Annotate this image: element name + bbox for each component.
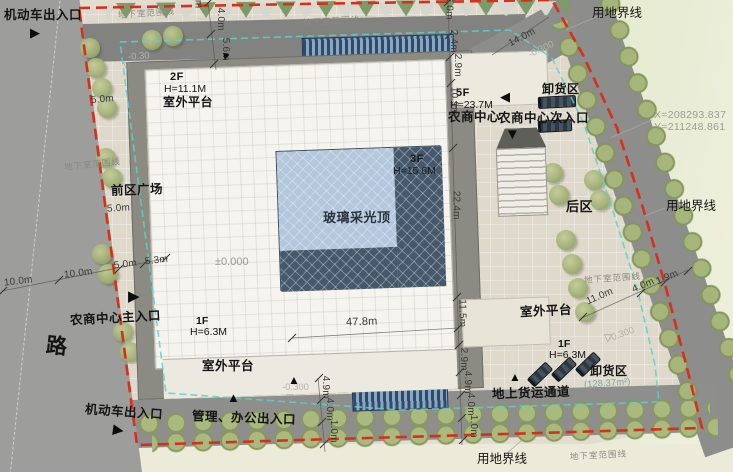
dim-top-3: 10.9m (448, 87, 459, 116)
secondary-entrance-label: 农商中心次入口 (498, 112, 589, 125)
elevation-zero: ±0.000 (215, 257, 249, 269)
dim-plaza-mid: 5.0m (107, 203, 131, 215)
freight-passage-label: 地上货运通道 (492, 386, 570, 402)
unloading-area-top-label: 卸货区 (542, 83, 580, 96)
boundary-label-top: 用地界线 (592, 7, 642, 20)
floor1-left-height: H=6.3M (190, 327, 227, 338)
dim-left-1: 4.0m (214, 8, 225, 31)
skylight-label: 玻璃采光顶 (323, 211, 391, 225)
entrance-arrow-icon: ▲ (288, 374, 300, 386)
dim-south-2: 1.0m (327, 420, 338, 443)
entrance-arrow-icon: ▲ (509, 371, 521, 383)
tree-icon (86, 58, 106, 78)
dim-right-0: 22.4m (450, 191, 461, 220)
vehicle-entrance-top-label: 机动车出入口 (4, 9, 82, 22)
dim-right-4: 4.0m (464, 393, 475, 416)
lane-marking (9, 0, 61, 472)
elevation-mark-icon: ▽ (123, 62, 131, 72)
road-label: 路 (45, 335, 69, 359)
elevation-mark-icon: ▽ (604, 334, 612, 344)
dim-right-1: 11.5m (456, 299, 467, 327)
dim-right-3: 4.9m (461, 371, 472, 394)
tree-icon (562, 254, 582, 274)
boundary-label-bottom: 用地界线 (477, 453, 527, 466)
floor3-level: 3F (410, 154, 424, 166)
floor3-height: H=15.6M (393, 166, 436, 177)
floor1-right-height: H=6.3M (549, 350, 586, 361)
platform-se-label: 室外平台 (520, 304, 573, 320)
tree-icon (92, 244, 112, 264)
tree-icon (584, 170, 604, 190)
tree-icon (163, 26, 183, 46)
floor2-name: 室外平台 (163, 96, 213, 109)
floor2-level: 2F (170, 72, 184, 84)
dim-top-0: 26.0m (443, 0, 454, 20)
site-plan: 机动车出入口 用地界线 地下室范围线 地下室范围线 地下室范围线 地下室范围线 … (0, 0, 733, 472)
dim-south-1: 4.0m (323, 398, 334, 421)
dim-south-0: 4.9m (319, 376, 330, 399)
entrance-arrow-icon: ▶ (128, 289, 140, 304)
floor2-height: H=11.1M (164, 84, 206, 95)
entrance-arrow-icon: ▶ (112, 421, 125, 436)
front-plaza-label: 前区广场 (111, 183, 163, 198)
platform-sw-label: 室外平台 (202, 360, 254, 373)
entrance-arrow-icon: ▶ (30, 26, 40, 39)
unloading-area-bottom-label: 卸货区 (590, 365, 628, 378)
tree-icon (556, 230, 576, 250)
dim-top-1: 2.4m (447, 30, 458, 53)
elevation-mark-icon: ▽ (286, 394, 294, 404)
dim-plaza-upper: 5.0m (91, 94, 115, 106)
truck-icon (538, 95, 577, 109)
tree-icon (80, 38, 100, 58)
entrance-arrow-icon: ▲ (227, 391, 240, 404)
dim-building-width: 47.8m (346, 316, 378, 329)
dim-top-2: 2.9m (451, 54, 462, 77)
coordinate-y-label: Y=211248.861 (654, 122, 725, 133)
entrance-stairs (496, 147, 548, 217)
dim-right-5: 1.0m (467, 415, 478, 438)
coordinate-x-label: X=208293.837 (654, 110, 726, 121)
rear-area-label: 后区 (566, 200, 593, 214)
entrance-arrow-icon: ◀ (500, 90, 510, 103)
dim-right-2: 2.9m (457, 348, 468, 371)
tree-icon (142, 30, 162, 50)
entrance-arrow-icon: ▼ (505, 127, 520, 142)
dim-left-0: 2m (192, 0, 203, 8)
elevation-nw: -0.30 (128, 51, 150, 62)
boundary-label-right: 用地界线 (666, 200, 716, 213)
